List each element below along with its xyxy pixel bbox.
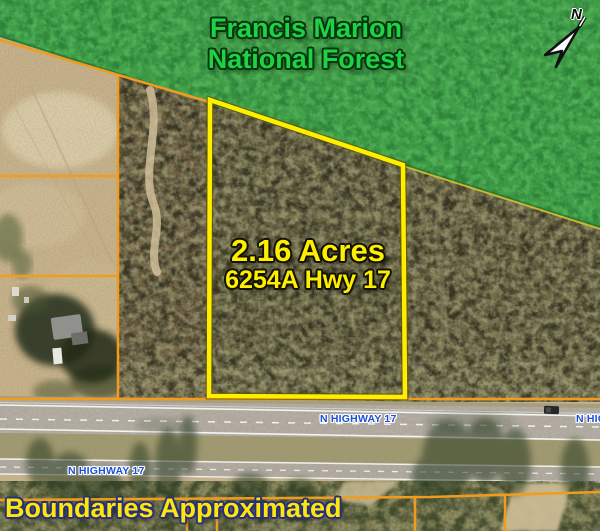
parcel-label: 2.16 Acres 6254A Hwy 17 [218,234,398,294]
forest-label-line2: National Forest [170,44,442,75]
highway-label-right: N HIGHWAY 17 [576,413,600,425]
highway-label-left: N HIGHWAY 17 [68,465,145,477]
forest-label-line1: Francis Marion [170,13,442,44]
north-arrow-label: N [571,6,582,23]
aerial-parcel-map: Francis Marion National Forest 2.16 Acre… [0,0,600,531]
disclaimer-text: Boundaries Approximated [5,493,342,524]
highway-label-center: N HIGHWAY 17 [320,413,397,425]
forest-label: Francis Marion National Forest [170,13,442,75]
vehicle [544,406,559,415]
parcel-acreage: 2.16 Acres [218,234,398,267]
parcel-address: 6254A Hwy 17 [218,267,398,294]
parked-car [52,348,62,365]
